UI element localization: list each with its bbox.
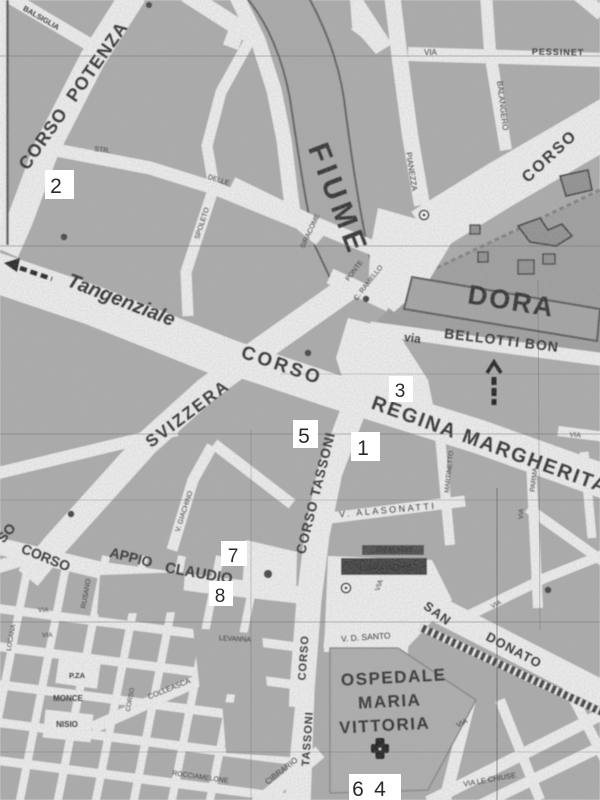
svg-text:2: 2: [50, 175, 62, 198]
svg-text:6: 6: [352, 778, 364, 800]
svg-text:7: 7: [228, 546, 239, 567]
svg-text:1: 1: [357, 437, 369, 460]
svg-text:3: 3: [395, 381, 406, 402]
svg-text:8: 8: [215, 586, 226, 607]
svg-text:5: 5: [298, 425, 310, 448]
svg-text:4: 4: [374, 778, 386, 800]
